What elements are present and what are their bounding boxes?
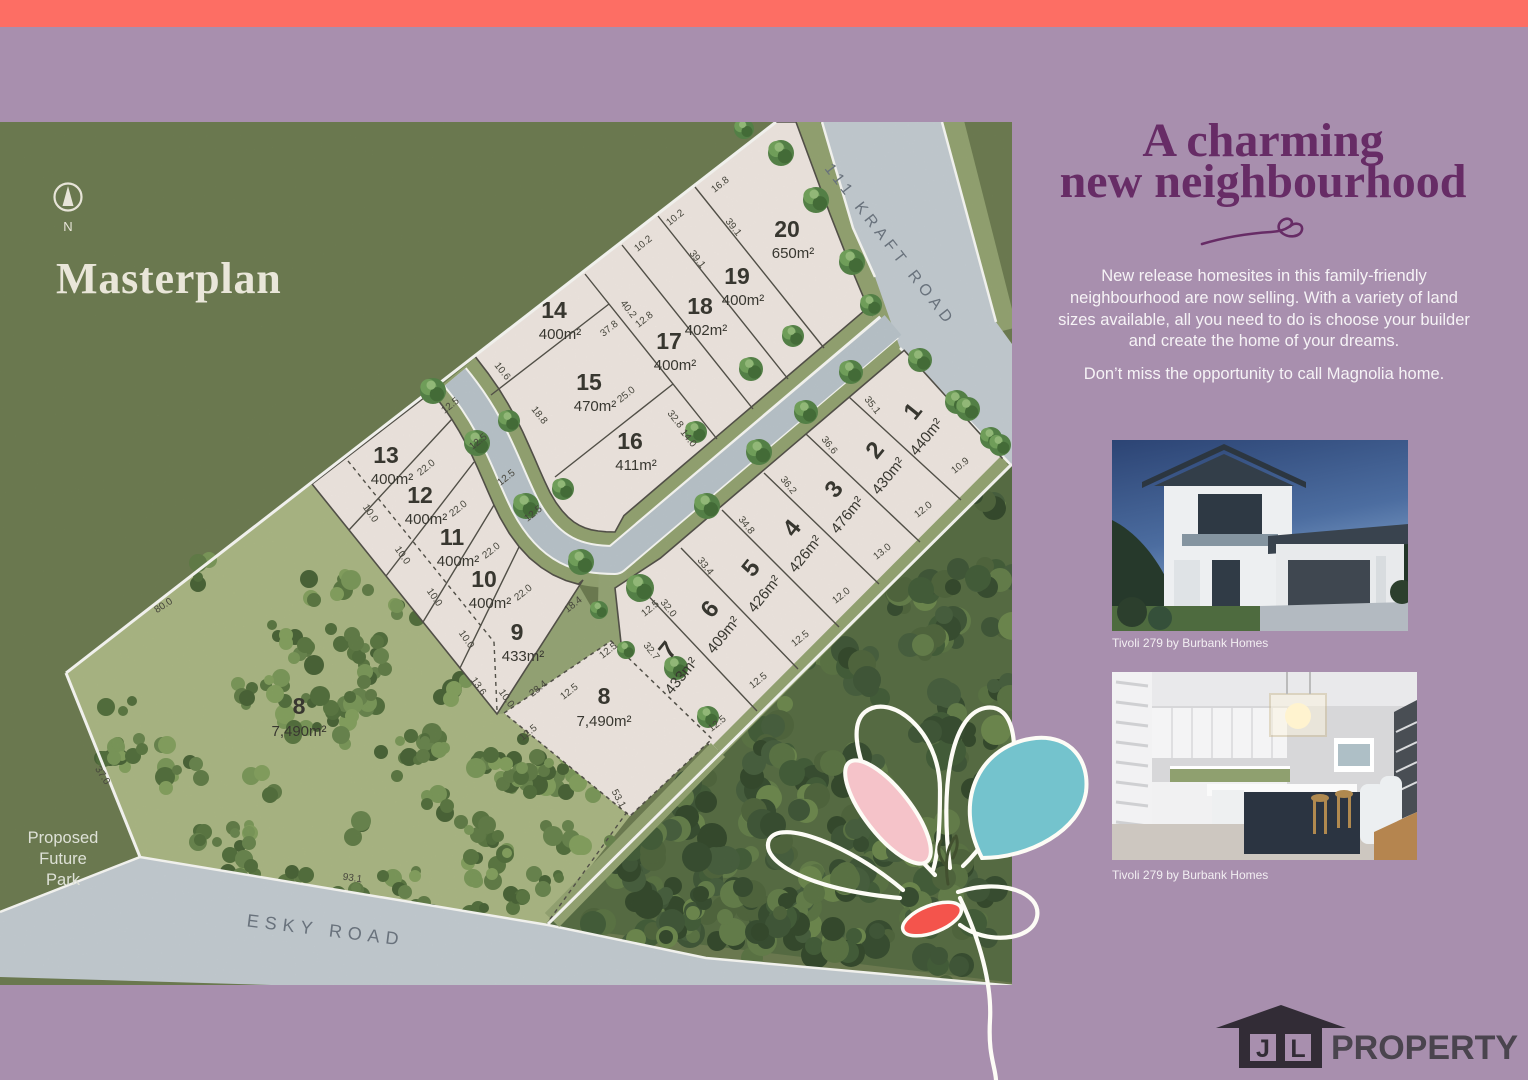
svg-text:L: L bbox=[1290, 1035, 1305, 1063]
svg-text:J: J bbox=[1256, 1035, 1270, 1063]
svg-text:PROPERTY: PROPERTY bbox=[1331, 1029, 1518, 1067]
